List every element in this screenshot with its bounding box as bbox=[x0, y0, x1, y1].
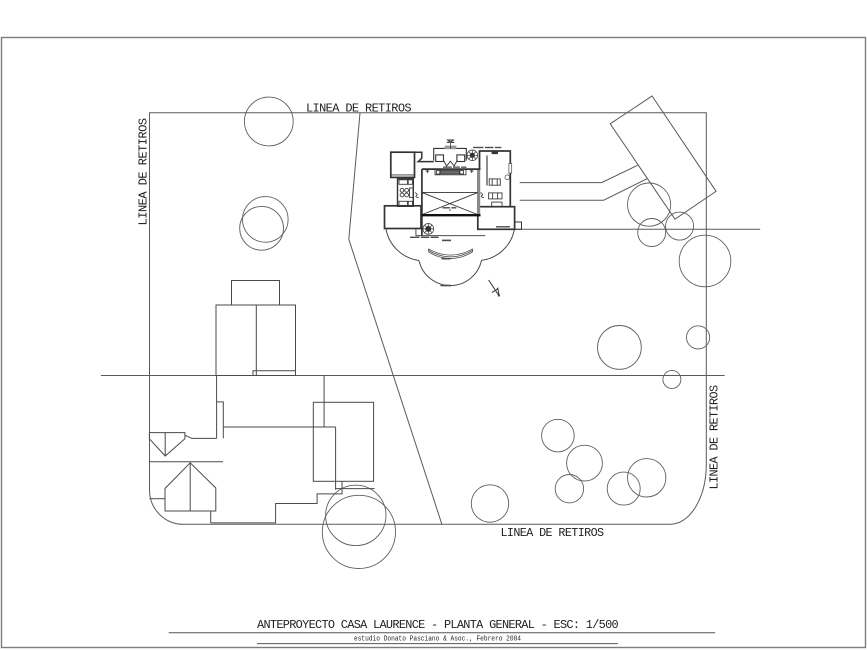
svg-text:LINEA DE RETIROS: LINEA DE RETIROS bbox=[138, 118, 151, 226]
svg-text:LINEA DE RETIROS: LINEA DE RETIROS bbox=[306, 103, 412, 116]
svg-text:LINEA DE RETIROS: LINEA DE RETIROS bbox=[709, 385, 722, 490]
svg-text:ANTEPROYECTO CASA LAURENCE - P: ANTEPROYECTO CASA LAURENCE - PLANTA GENE… bbox=[257, 618, 618, 632]
svg-text:LINEA DE RETIROS: LINEA DE RETIROS bbox=[501, 527, 605, 540]
svg-text:estudio Donato Pasciano & Asoc: estudio Donato Pasciano & Asoc., Febrero… bbox=[354, 636, 521, 644]
